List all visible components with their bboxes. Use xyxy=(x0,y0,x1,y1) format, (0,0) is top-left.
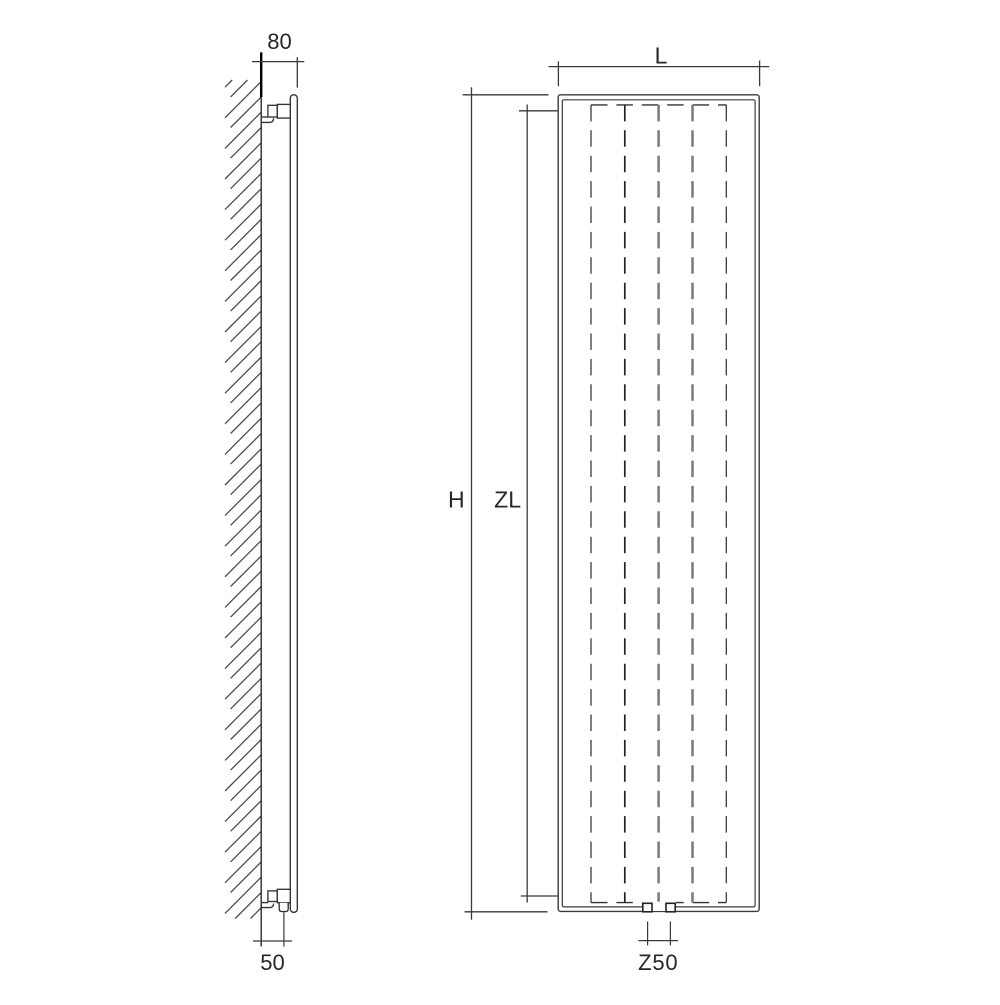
svg-text:L: L xyxy=(655,43,668,69)
svg-text:50: 50 xyxy=(260,950,284,975)
svg-text:80: 80 xyxy=(267,29,291,54)
svg-text:ZL: ZL xyxy=(494,487,521,513)
svg-text:H: H xyxy=(448,486,465,512)
svg-text:Z50: Z50 xyxy=(638,950,678,975)
